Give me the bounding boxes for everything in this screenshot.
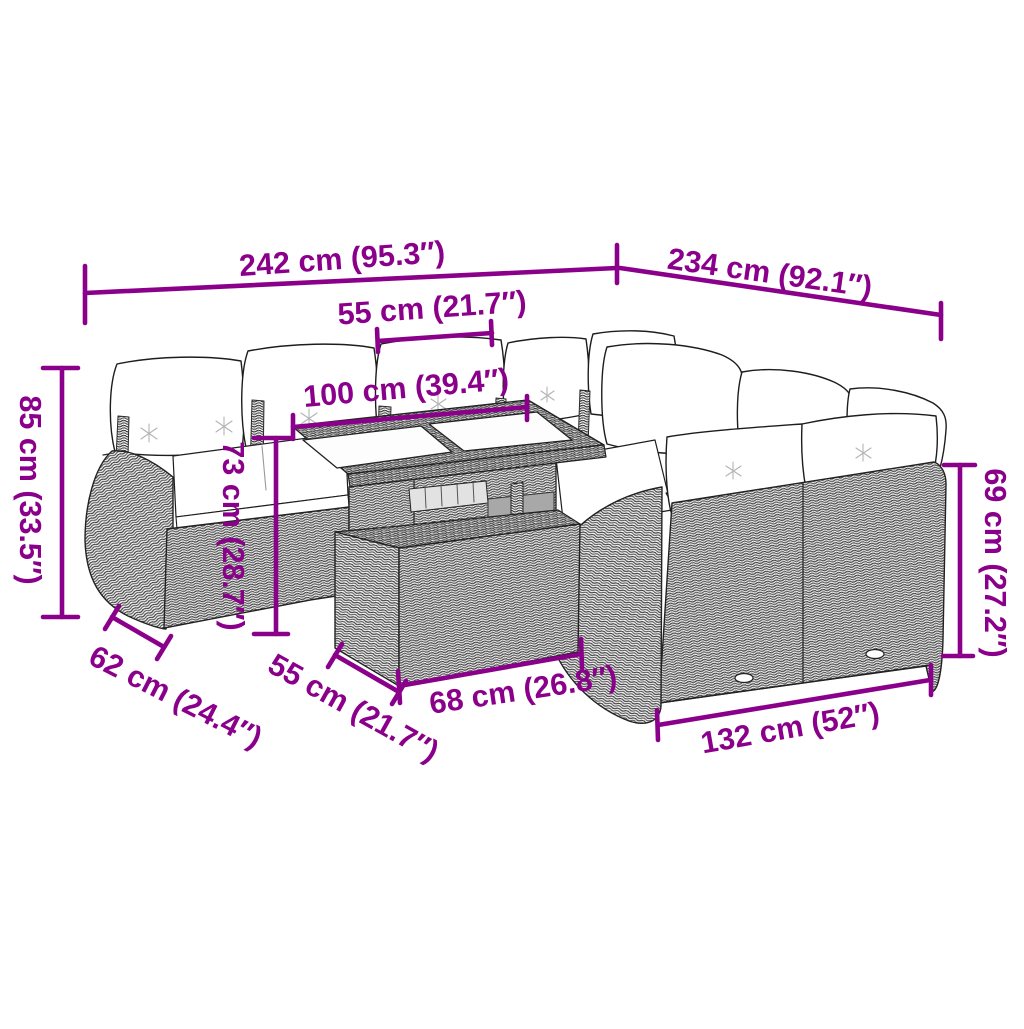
svg-text:69 cm (27.2″): 69 cm (27.2″) [978, 468, 1012, 657]
svg-text:73 cm (28.7″): 73 cm (28.7″) [216, 441, 250, 630]
svg-text:85 cm (33.5″): 85 cm (33.5″) [13, 395, 47, 584]
